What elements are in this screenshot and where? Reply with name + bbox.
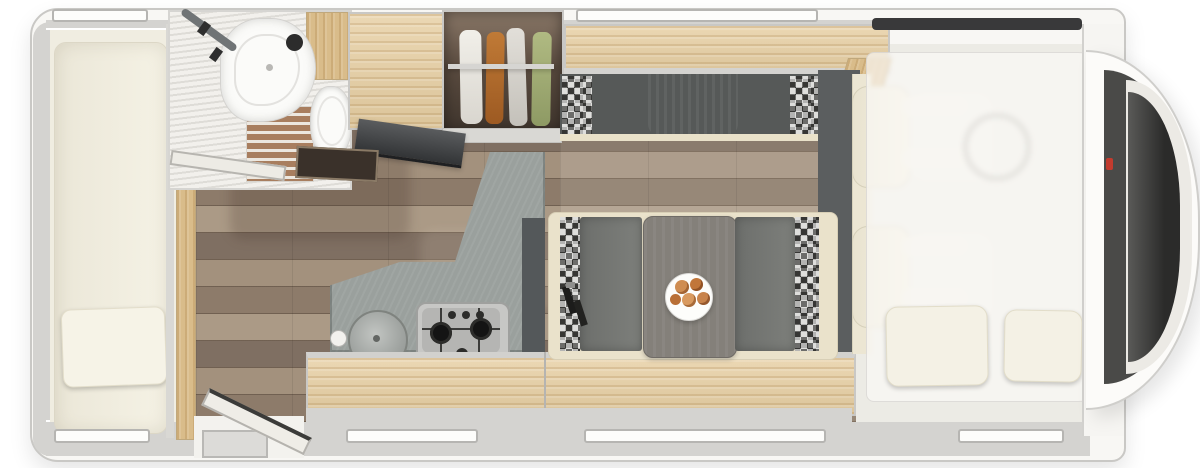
clothes-green xyxy=(531,32,552,126)
motorhome-floorplan xyxy=(0,0,1200,468)
window-top-rear xyxy=(52,9,148,22)
sink-center-dot xyxy=(373,335,380,342)
overcab-pillow-right xyxy=(1003,309,1082,382)
food-item-3 xyxy=(682,293,696,307)
clothes-gray xyxy=(506,28,527,127)
dinette-bench-right xyxy=(735,217,795,351)
bench-backrest xyxy=(648,74,738,136)
bed-pillow xyxy=(61,306,168,388)
food-item-1 xyxy=(675,280,689,294)
wardrobe-rail xyxy=(448,64,554,69)
hob-knob-2 xyxy=(462,311,470,319)
toilet-seat-rim xyxy=(317,96,347,146)
bench-checkered-left xyxy=(562,76,592,134)
tall-dark-unit xyxy=(522,218,545,352)
wood-cabinet xyxy=(348,12,444,130)
bench-front-edge xyxy=(560,134,852,141)
drain-dot xyxy=(266,64,273,71)
wood-partition xyxy=(176,178,196,440)
overhead-locker xyxy=(564,24,890,74)
window-bottom-dinette xyxy=(584,429,826,443)
dinette-checkered-right xyxy=(795,217,819,351)
hob-knob-1 xyxy=(448,311,456,319)
window-top-lounge xyxy=(576,9,818,22)
wood-sideboard xyxy=(306,352,856,416)
hob-burner-right xyxy=(470,318,492,340)
window-bottom-kitchen xyxy=(346,429,478,443)
window-bottom-bedroom xyxy=(54,429,150,443)
food-item-4 xyxy=(697,292,710,305)
hob-burner-left xyxy=(430,322,452,344)
red-marker xyxy=(1106,158,1113,170)
cab-roofline-stripe xyxy=(872,18,1082,30)
clothes-white xyxy=(459,30,483,124)
sideboard-divider xyxy=(544,352,546,408)
faucet-icon xyxy=(286,34,303,51)
dinette-bench-left xyxy=(580,217,642,351)
hob-knob-3 xyxy=(476,311,484,319)
food-item-2 xyxy=(690,278,703,291)
floor-hatch xyxy=(295,146,379,182)
entry-step xyxy=(202,430,268,458)
belt-buckle xyxy=(566,282,575,288)
clothes-orange xyxy=(485,32,505,124)
rear-wall xyxy=(33,22,50,456)
sideboard-plinth xyxy=(306,408,852,422)
window-bottom-cabdoor xyxy=(958,429,1064,443)
food-item-5 xyxy=(670,294,681,305)
overcab-pillow-left xyxy=(885,305,988,387)
kitchen-tap xyxy=(330,330,347,347)
